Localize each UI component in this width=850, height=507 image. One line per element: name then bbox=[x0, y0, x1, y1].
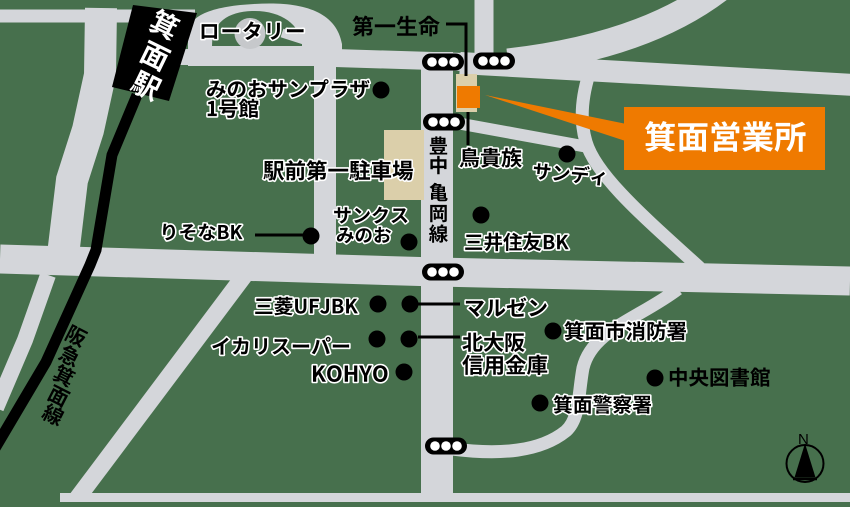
svg-text:N: N bbox=[798, 431, 809, 448]
